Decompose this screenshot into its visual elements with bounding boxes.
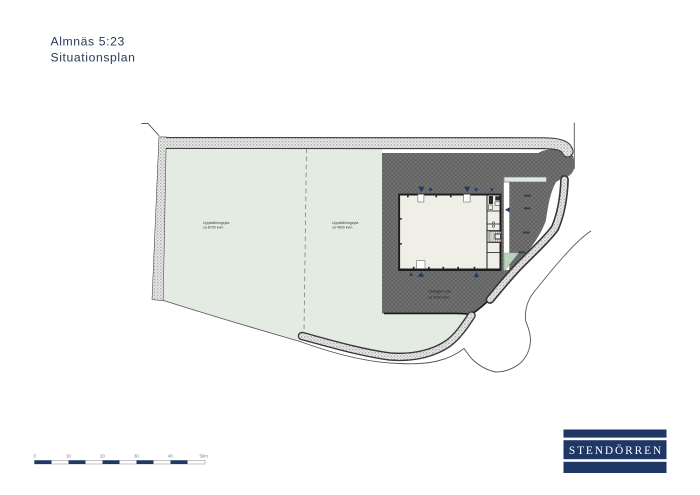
svg-text:Uppställningsyta: Uppställningsyta [332, 221, 358, 225]
svg-text:Situationsplan: Situationsplan [51, 50, 136, 64]
svg-text:50m: 50m [200, 453, 209, 458]
svg-text:Uppställningsyta: Uppställningsyta [203, 221, 229, 225]
svg-text:ca 4600 kvm: ca 4600 kvm [332, 226, 352, 230]
svg-text:ca 4100 kvm: ca 4100 kvm [428, 296, 450, 300]
svg-text:20: 20 [100, 453, 105, 458]
svg-text:0: 0 [34, 453, 37, 458]
svg-text:Almnäs 5:23: Almnäs 5:23 [51, 34, 125, 48]
svg-text:30: 30 [134, 453, 139, 458]
svg-text:Hårdgjord yta: Hårdgjord yta [428, 290, 452, 294]
svg-text:40: 40 [168, 453, 173, 458]
svg-text:ca 8700 kvm: ca 8700 kvm [203, 226, 223, 230]
svg-text:10: 10 [66, 453, 71, 458]
svg-text:STENDÖRREN: STENDÖRREN [569, 445, 663, 457]
